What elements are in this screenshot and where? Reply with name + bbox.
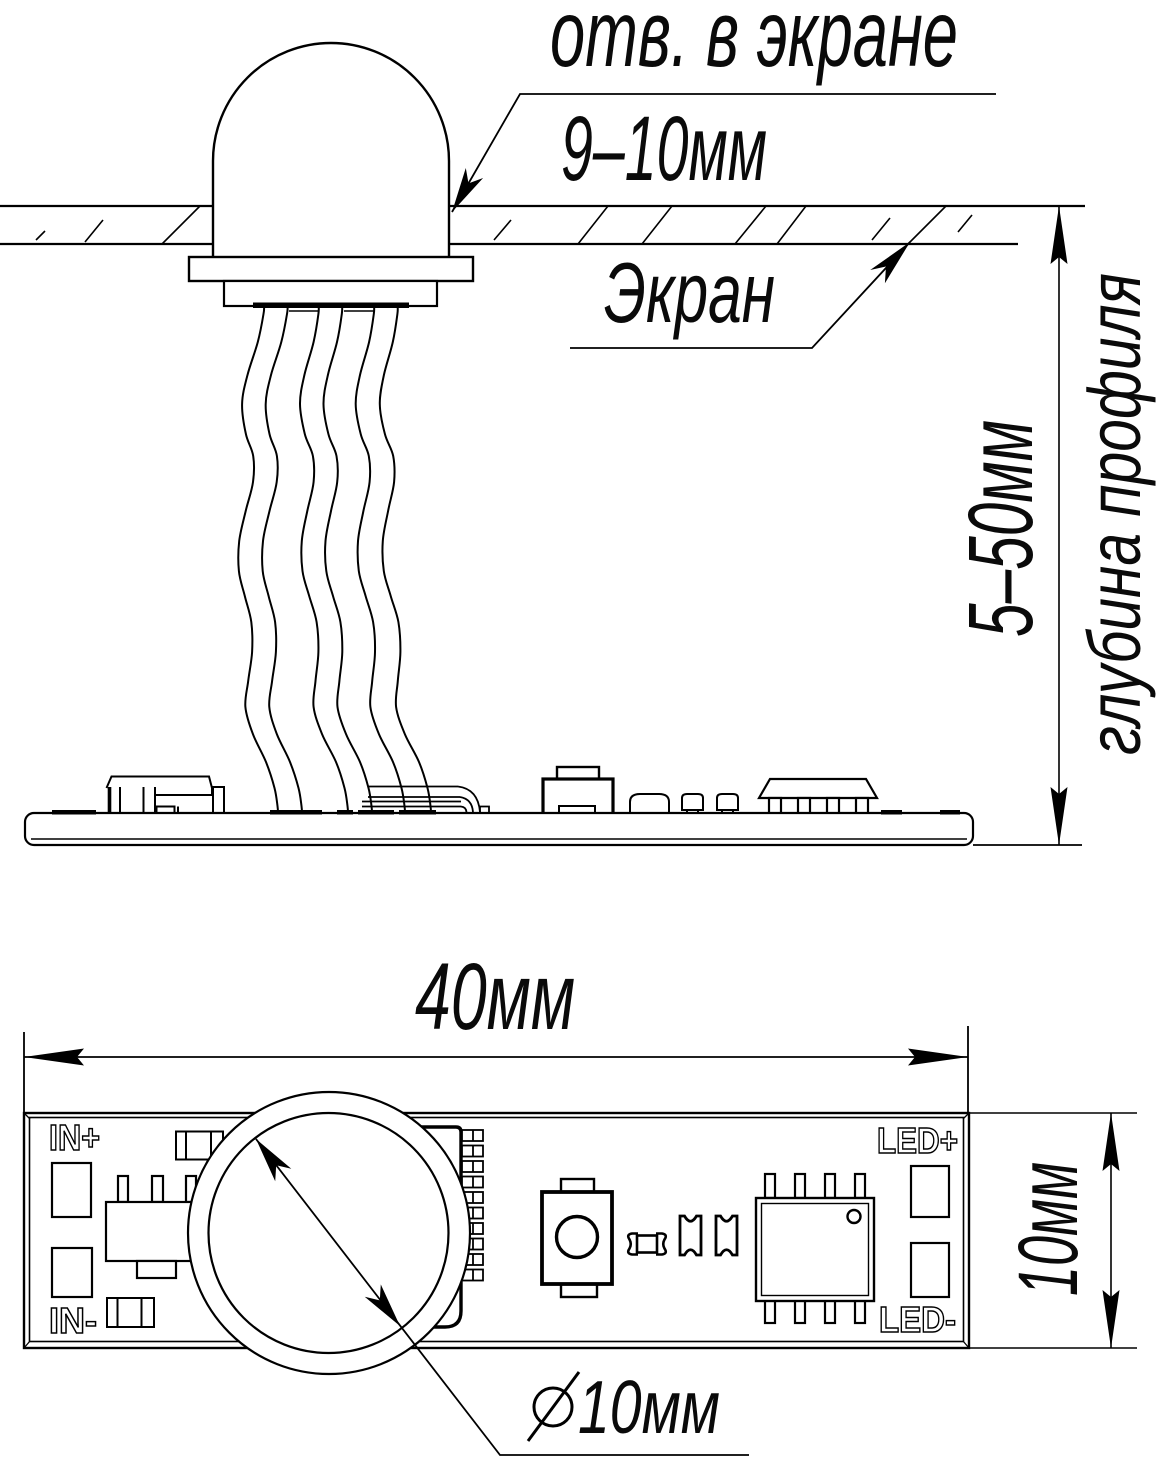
svg-text:40мм: 40мм — [415, 944, 575, 1050]
svg-text:10мм: 10мм — [1001, 1162, 1095, 1296]
svg-text:глубина профиля: глубина профиля — [1073, 273, 1156, 755]
svg-text:отв. в экране: отв. в экране — [550, 0, 958, 87]
svg-text:5–50мм: 5–50мм — [950, 420, 1052, 637]
svg-text:LED+: LED+ — [877, 1120, 958, 1161]
svg-text:IN+: IN+ — [49, 1117, 100, 1158]
svg-text:9–10мм: 9–10мм — [561, 98, 767, 200]
svg-text:10мм: 10мм — [578, 1365, 720, 1449]
svg-text:Экран: Экран — [604, 246, 775, 341]
svg-text:LED-: LED- — [879, 1299, 956, 1340]
svg-text:IN-: IN- — [49, 1300, 97, 1341]
